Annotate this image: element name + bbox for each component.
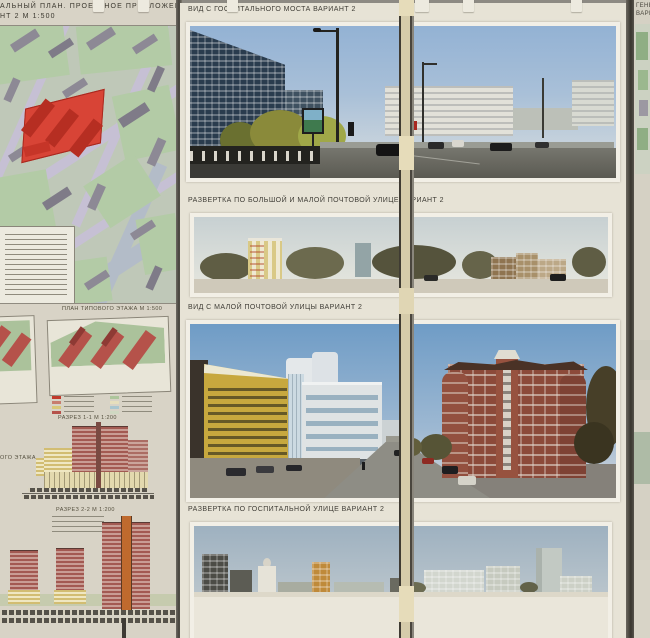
- streetlight-pole: [422, 62, 424, 146]
- caption-view-from-bridge: ВИД С ГОСПИТАЛЬНОГО МОСТА ВАРИАНТ 2: [188, 6, 356, 13]
- billboard-image-bottom: [304, 120, 322, 132]
- treeline: [372, 245, 456, 279]
- board-seam: [399, 0, 414, 638]
- right-board-title-line2: ВАРИ: [636, 11, 650, 17]
- white-slab-building: [572, 80, 614, 126]
- legend-text-lines: [64, 396, 94, 414]
- floor-plan-legend: [52, 396, 172, 414]
- legend-swatch: [110, 401, 119, 404]
- seam-tape-patch: [399, 586, 414, 622]
- legend-swatch: [52, 401, 61, 404]
- parked-car: [226, 468, 246, 476]
- section-tower-pink: [128, 440, 148, 472]
- orange-tower: [312, 562, 330, 592]
- map-green-patch: [638, 70, 648, 90]
- bluish-tower: [355, 243, 371, 277]
- right-board-title-line1: ГЕНЕ: [636, 3, 650, 9]
- photo-of-architectural-boards: АЛЬНЫЙ ПЛАН. ПРОЕКТНОЕ ПРЕДЛОЖЕНИЕ НТ 2 …: [0, 0, 650, 638]
- right-board-green-photo: [634, 432, 650, 484]
- seam-tape-patch: [399, 288, 414, 314]
- car: [550, 274, 566, 281]
- left-board-title-line1: АЛЬНЫЙ ПЛАН. ПРОЕКТНОЕ ПРЕДЛОЖЕНИЕ: [0, 3, 178, 10]
- section-2-2-title: РАЗРЕЗ 2-2 М 1:200: [56, 507, 115, 513]
- road: [285, 148, 616, 178]
- left-board-title-line2: НТ 2 М 1:500: [0, 13, 56, 20]
- master-plan-map: [0, 25, 178, 304]
- treeline: [572, 247, 606, 277]
- billboard: [302, 108, 324, 134]
- right-board: ГЕНЕ ВАРИ: [634, 0, 650, 638]
- streetlight-pole: [336, 28, 339, 148]
- section-ground-bar: [28, 488, 148, 492]
- white-render-blocks: [424, 570, 484, 592]
- car: [428, 142, 444, 149]
- car: [535, 142, 549, 148]
- streetlight-pole: [542, 78, 544, 138]
- section-ground-bar: [0, 618, 178, 623]
- white-van: [452, 140, 464, 147]
- yellow-building-windows: [208, 388, 287, 464]
- brick-stair-tower: [496, 358, 518, 478]
- map-gray-patch: [639, 100, 648, 116]
- legend-swatch: [110, 406, 119, 409]
- section-ground-bar: [22, 495, 154, 499]
- treeline: [286, 247, 344, 279]
- section-1-1-title: РАЗРЕЗ 1-1 М 1:200: [58, 415, 117, 421]
- tape-icon: [138, 0, 149, 12]
- section-ground-line: [22, 493, 154, 494]
- white-car: [458, 476, 476, 485]
- section-shaft: [96, 422, 101, 488]
- caption-elevation-gospitalnaya: РАЗВЕРТКА ПО ГОСПИТАЛЬНОЙ УЛИЦЕ ВАРИАНТ …: [188, 506, 384, 513]
- legend-swatch: [52, 396, 61, 399]
- board-gap-shadow-right: [626, 0, 634, 638]
- section-base-yellow: [54, 590, 86, 604]
- low-white-buildings: [334, 582, 384, 592]
- streetlight-lamp: [313, 28, 321, 32]
- tree-mid: [420, 434, 452, 460]
- section-tower-core-orange: [121, 516, 132, 610]
- legend-text-lines: [122, 396, 152, 414]
- billboard-image-top: [304, 110, 322, 120]
- tape-icon: [415, 0, 429, 12]
- section-ground-post: [122, 618, 126, 638]
- tall-render-tower: [536, 548, 562, 592]
- section-base-yellow: [8, 590, 40, 604]
- dark-low-building: [230, 570, 252, 592]
- map-green-patch: [637, 128, 648, 150]
- map-legend-text-lines: [5, 234, 67, 296]
- right-board-map: [635, 24, 650, 174]
- floor-plan-main: [47, 316, 172, 396]
- section-legend-lines: [52, 516, 104, 536]
- car: [442, 466, 458, 474]
- railing-posts: [190, 151, 320, 161]
- seam-tape-patch: [399, 136, 414, 170]
- tape-icon: [93, 0, 104, 12]
- render-white-building: [302, 382, 382, 467]
- map-legend-box: [0, 226, 75, 304]
- treeline: [200, 253, 252, 281]
- map-green-patch: [636, 32, 648, 60]
- section-ground-bar: [0, 610, 178, 615]
- tree-right: [574, 422, 614, 464]
- typical-floor-plan-block: ПЛАН ТИПОВОГО ЭТАЖА М 1:500: [0, 302, 178, 414]
- streetlight-arm: [318, 30, 338, 32]
- church: [258, 566, 276, 592]
- render-window-bands: [306, 395, 378, 451]
- parked-car: [256, 466, 274, 473]
- white-render-blocks: [560, 576, 592, 592]
- car: [490, 143, 512, 151]
- red-car: [422, 458, 434, 464]
- right-board-fragment: [634, 340, 650, 380]
- section-2-2-block: РАЗРЕЗ 2-2 М 1:200: [0, 506, 178, 638]
- brick-corner-tower: [442, 372, 468, 478]
- caption-view-pochtovaya: ВИД С МАЛОЙ ПОЧТОВОЙ УЛИЦЫ ВАРИАНТ 2: [188, 304, 362, 311]
- dark-tower: [202, 554, 228, 592]
- floor-plan-partial: [0, 315, 38, 405]
- floor-plan-title: ПЛАН ТИПОВОГО ЭТАЖА М 1:500: [62, 306, 162, 312]
- tape-icon: [227, 0, 238, 12]
- white-render-blocks: [486, 566, 520, 592]
- stair-window-strip: [503, 364, 511, 470]
- pedestrian: [362, 462, 365, 470]
- left-board: АЛЬНЫЙ ПЛАН. ПРОЕКТНОЕ ПРЕДЛОЖЕНИЕ НТ 2 …: [0, 0, 178, 638]
- section-1-1-block: РАЗРЕЗ 1-1 М 1:200: [0, 414, 178, 506]
- bridge-railing: [190, 146, 320, 164]
- tape-icon: [571, 0, 582, 12]
- tape-icon: [463, 0, 474, 12]
- seam-tape-patch: [399, 0, 414, 16]
- traffic-light: [348, 122, 354, 136]
- legend-swatch: [110, 396, 119, 399]
- car: [424, 275, 438, 281]
- parked-car: [286, 465, 302, 471]
- streetlight-arm: [422, 63, 437, 65]
- section-block-yellow: [36, 458, 44, 476]
- right-board-fragment: [634, 560, 650, 638]
- bridge-parapet: [190, 164, 310, 178]
- legend-swatch: [52, 406, 61, 409]
